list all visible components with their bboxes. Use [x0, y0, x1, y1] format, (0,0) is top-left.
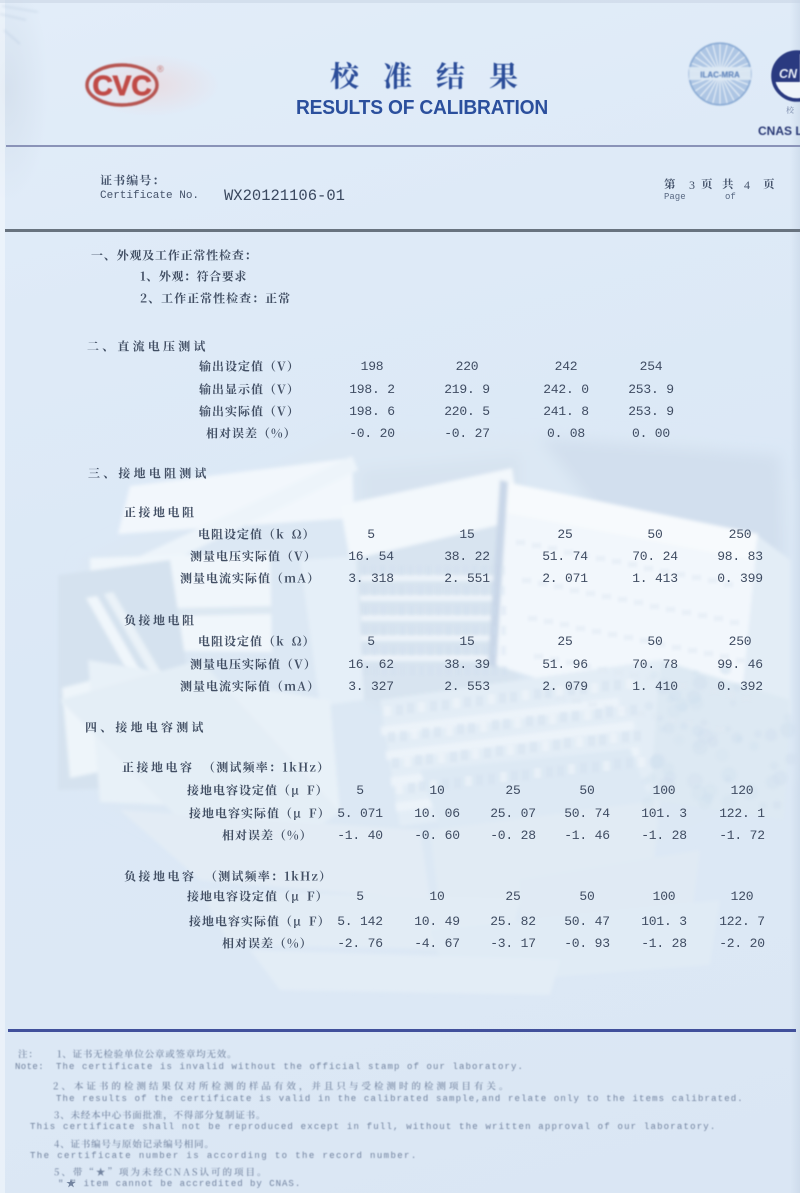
svg-text:CN: CN: [779, 67, 798, 81]
svg-text:CVC: CVC: [92, 70, 151, 101]
svg-text:ILAC-MRA: ILAC-MRA: [700, 71, 740, 80]
svg-text:CNAS L1: CNAS L1: [758, 124, 800, 138]
svg-text:®: ®: [157, 64, 164, 74]
